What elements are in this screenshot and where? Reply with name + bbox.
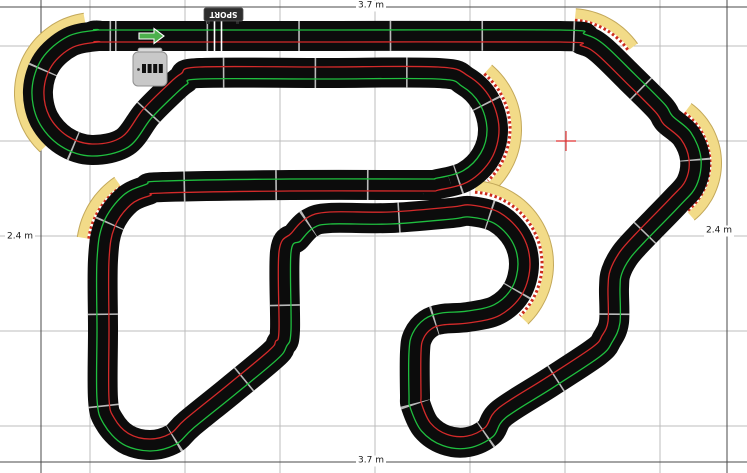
track-joints (38, 36, 695, 445)
powerbase-connector (142, 64, 146, 73)
track-editor-canvas[interactable]: SPORT 3.7 m 3.7 m 2.4 m 2.4 m (0, 0, 747, 473)
dimension-label-bottom: 3.7 m (356, 456, 386, 467)
powerbase-connector (148, 64, 152, 73)
dimension-label-right: 2.4 m (704, 226, 734, 237)
track-surface[interactable] (38, 36, 695, 445)
dimension-label-top: 3.7 m (356, 1, 386, 12)
powerbase-connector (153, 64, 157, 73)
powerbase-connector (159, 64, 163, 73)
lane-line-green-lane (32, 30, 701, 451)
dimension-label-left: 2.4 m (5, 232, 35, 243)
track-layout-drawing[interactable]: SPORT (0, 0, 747, 473)
sport-sign-label: SPORT (209, 10, 238, 19)
powerbase-button (137, 68, 140, 71)
